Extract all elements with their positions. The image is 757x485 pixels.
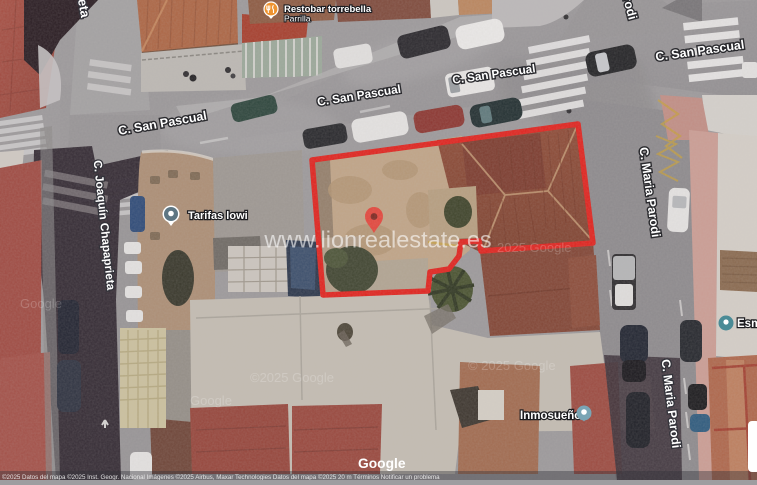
svg-text:© 2025 Google: © 2025 Google: [468, 358, 556, 373]
svg-text:2025 Google: 2025 Google: [497, 240, 571, 255]
svg-text:©2025 Google: ©2025 Google: [250, 370, 334, 385]
svg-text:Tarifas lowi: Tarifas lowi: [188, 210, 248, 222]
svg-text:Parrilla: Parrilla: [284, 14, 311, 24]
svg-text:www.lionrealestate.es: www.lionrealestate.es: [263, 227, 491, 253]
svg-text:Google: Google: [190, 393, 232, 408]
svg-text:©2025 Datos del mapa ©2025 I: ©2025 Datos del mapa ©2025 Inst. Geogr. …: [2, 474, 440, 480]
svg-text:Inmosueño: Inmosueño: [520, 410, 581, 422]
svg-text:Esm: Esm: [737, 318, 757, 330]
svg-text:Google: Google: [358, 456, 406, 471]
svg-text:Google: Google: [20, 296, 62, 311]
